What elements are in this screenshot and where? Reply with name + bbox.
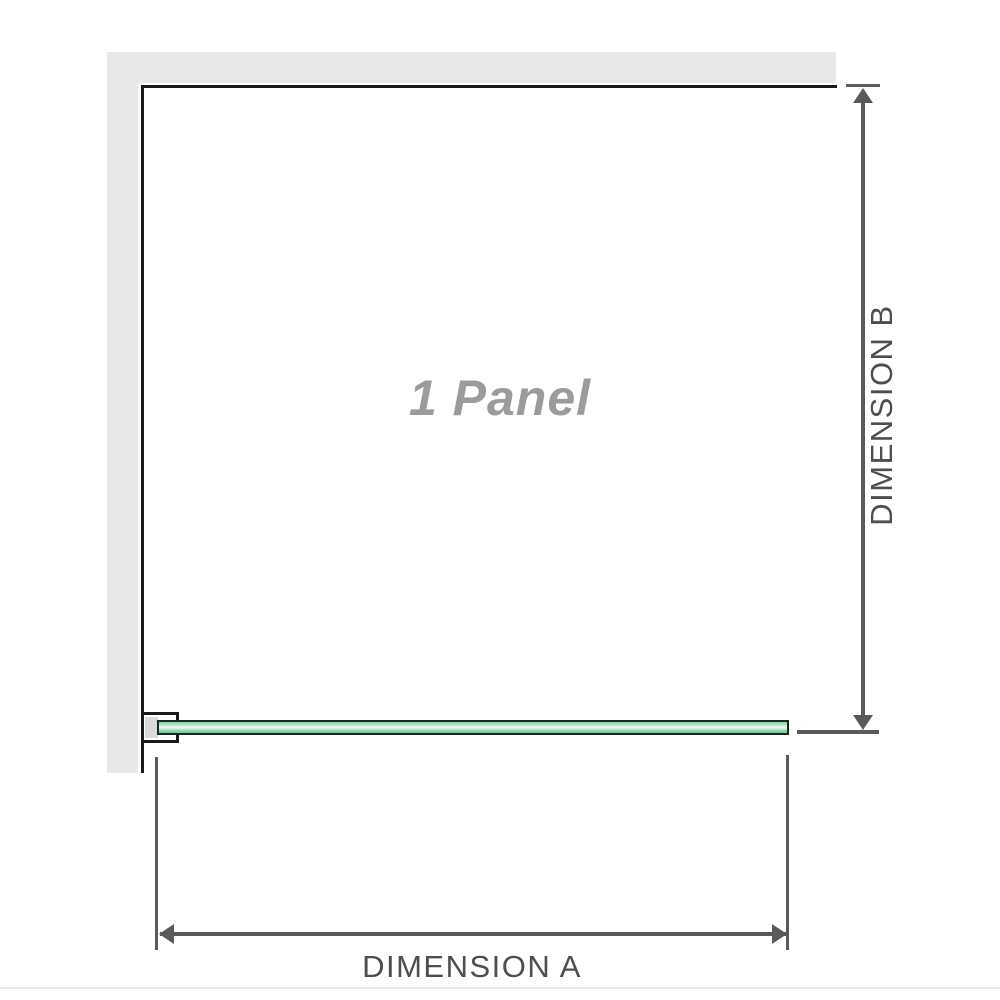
wall-left-band [107,52,138,773]
dimension-b-arrowhead-down-icon [853,715,873,730]
dimension-a-arrowhead-left-icon [159,924,174,944]
dimension-a-arrowhead-right-icon [772,924,787,944]
dimension-b-arrowhead-up-icon [853,88,873,103]
dimension-a-label: DIMENSION A [322,947,622,987]
wall-top-band [107,52,836,83]
dimension-b-tick-bottom [797,730,879,734]
panel-outline-left [141,85,144,773]
dimension-a-extension-left [155,757,158,950]
page-bottom-divider [0,987,1000,989]
glass-panel-top-view [157,720,789,735]
dimension-a-line [160,932,787,936]
panel-outline-top [141,85,837,88]
dimension-b-tick-top [846,84,880,87]
dimension-b-label: DIMENSION B [862,265,902,565]
dimension-a-extension-right [786,755,789,950]
diagram-stage: 1 Panel DIMENSION B DIMENSION A [0,0,1000,1000]
panel-count-label: 1 Panel [370,368,630,428]
